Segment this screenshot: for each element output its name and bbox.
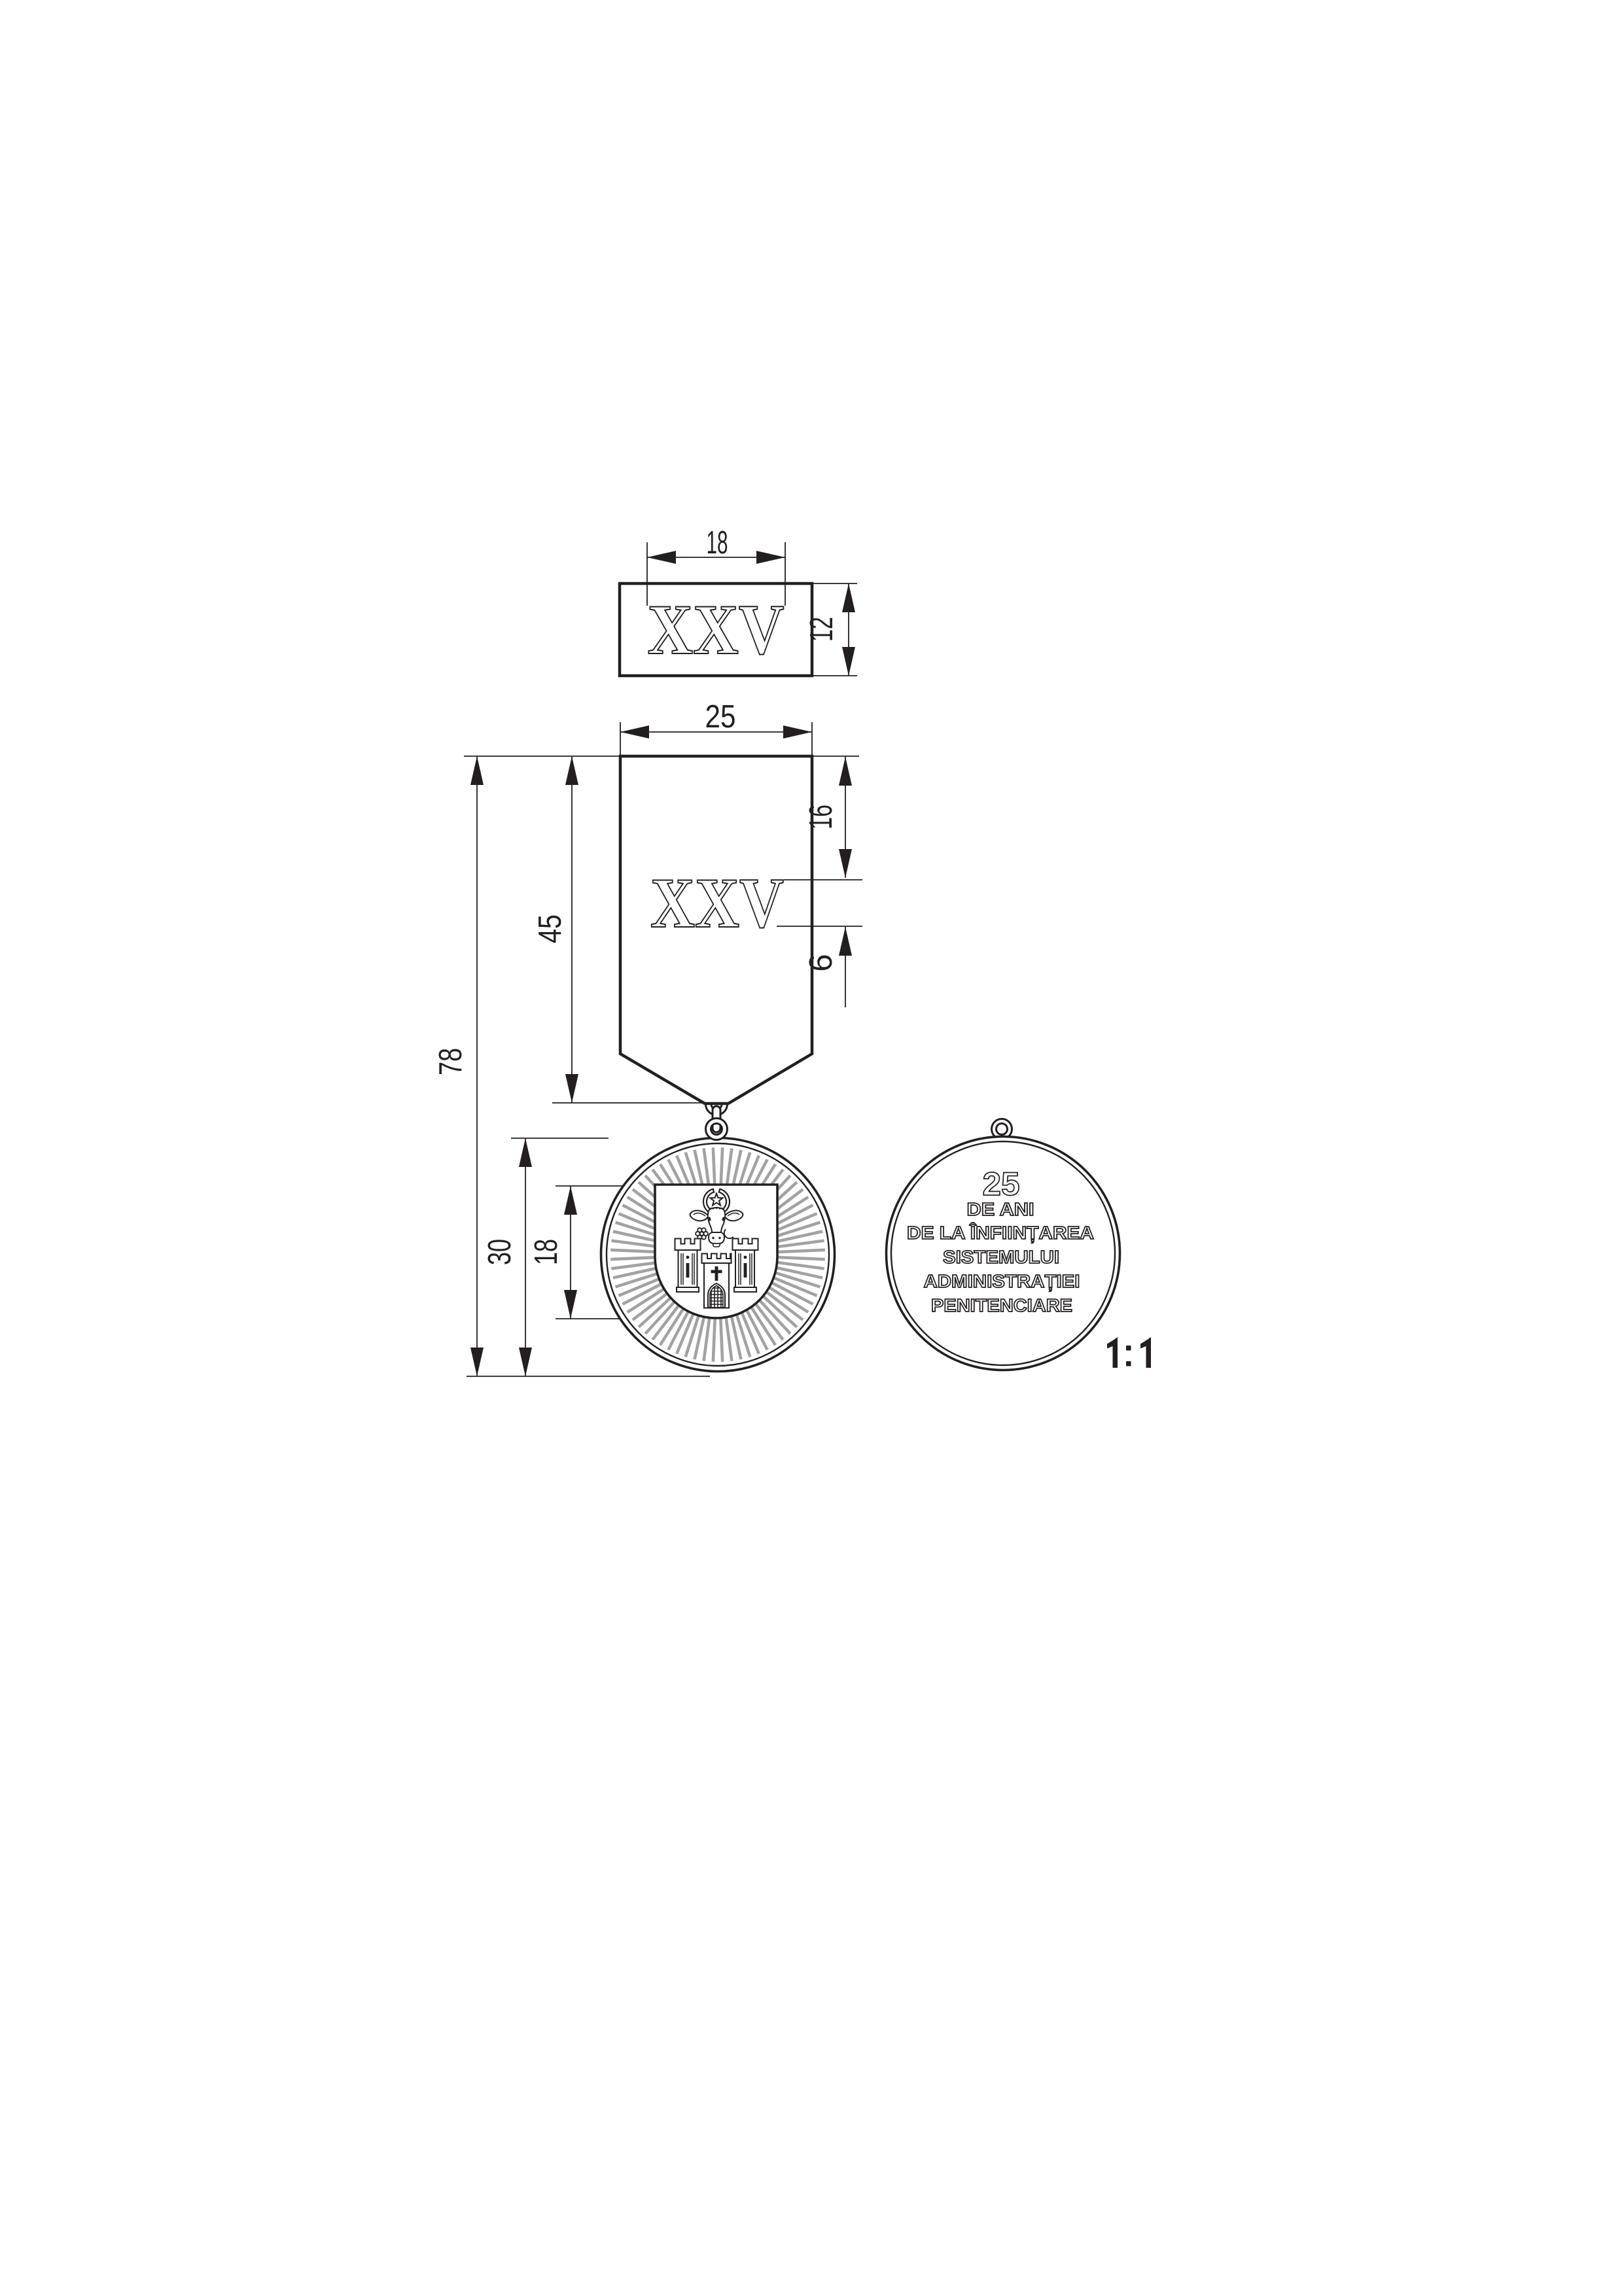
svg-text:XXV: XXV [648,590,785,669]
svg-text:16: 16 [803,805,839,829]
svg-text:78: 78 [433,1048,468,1075]
svg-text:45: 45 [533,914,568,943]
svg-text:25: 25 [983,1166,1020,1202]
svg-text:PENITENCIARE: PENITENCIARE [931,1295,1072,1315]
svg-text:18: 18 [707,525,728,561]
svg-text:30: 30 [482,1239,518,1265]
svg-text:ADMINISTRAȚIEI: ADMINISTRAȚIEI [924,1271,1080,1291]
svg-text:DE LA ÎNFIINȚAREA: DE LA ÎNFIINȚAREA [907,1223,1094,1243]
svg-text:XXV: XXV [650,863,784,943]
svg-text:12: 12 [804,617,839,642]
svg-text:6: 6 [803,954,839,971]
svg-text:18: 18 [529,1239,564,1265]
svg-text:DE ANI: DE ANI [967,1199,1034,1219]
svg-text:25: 25 [705,699,736,735]
svg-text:SISTEMULUI: SISTEMULUI [943,1247,1059,1267]
